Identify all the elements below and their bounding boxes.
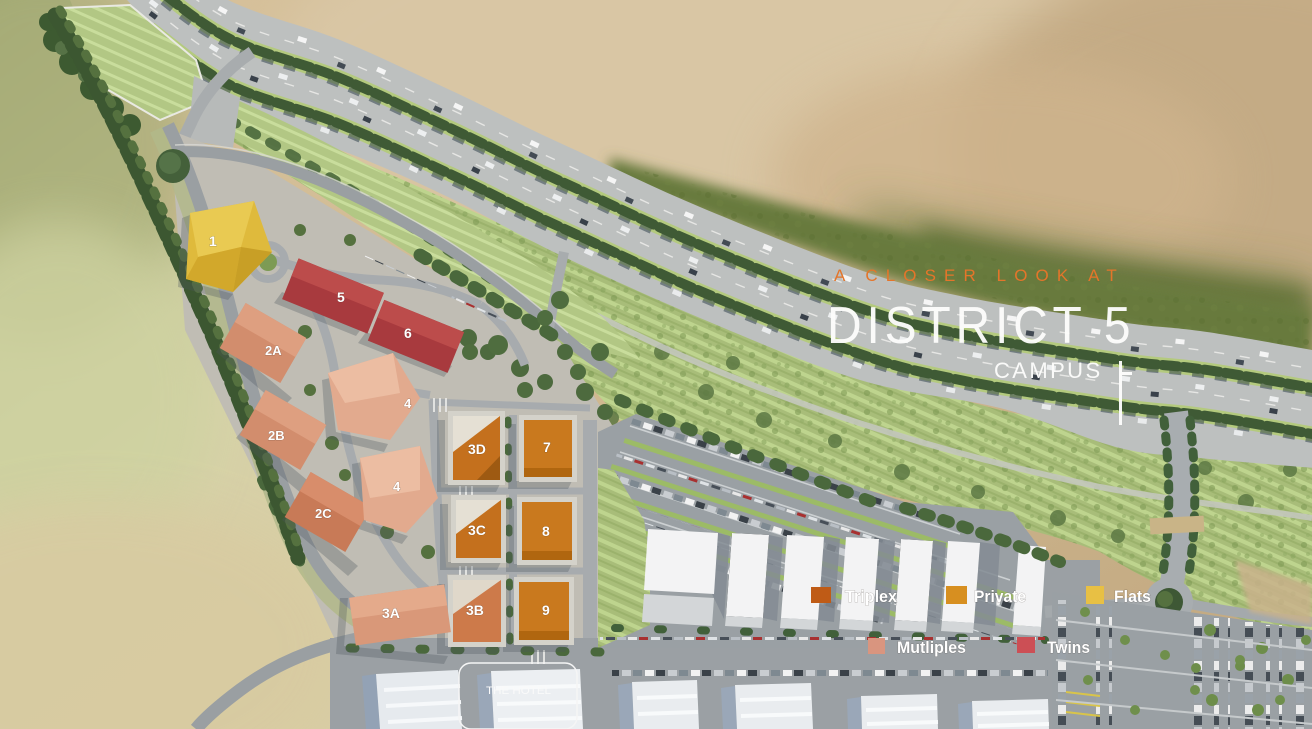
svg-text:3D: 3D [468, 441, 486, 457]
svg-text:5: 5 [337, 289, 345, 305]
svg-text:2C: 2C [315, 506, 332, 521]
svg-text:Mutliples: Mutliples [897, 638, 966, 657]
svg-text:6: 6 [404, 325, 412, 341]
svg-text:Flats: Flats [1114, 587, 1151, 606]
svg-text:Triplex: Triplex [845, 587, 898, 606]
svg-text:4: 4 [404, 396, 412, 411]
svg-text:3C: 3C [468, 522, 486, 538]
svg-text:A CLOSER LOOK AT: A CLOSER LOOK AT [834, 266, 1125, 285]
svg-text:Private: Private [974, 587, 1026, 606]
svg-text:Twins: Twins [1047, 638, 1090, 657]
svg-text:1: 1 [209, 233, 217, 249]
svg-text:3B: 3B [466, 602, 484, 618]
svg-text:THE HOTEL: THE HOTEL [486, 685, 551, 697]
svg-text:CAMPUS: CAMPUS [994, 358, 1103, 383]
svg-text:2A: 2A [265, 343, 282, 358]
svg-text:8: 8 [542, 523, 550, 539]
svg-text:DISTRICT 5: DISTRICT 5 [827, 296, 1135, 354]
svg-text:9: 9 [542, 602, 550, 618]
svg-text:3A: 3A [382, 605, 400, 621]
svg-text:4: 4 [393, 479, 401, 494]
svg-text:7: 7 [543, 439, 551, 455]
svg-text:2B: 2B [268, 428, 285, 443]
